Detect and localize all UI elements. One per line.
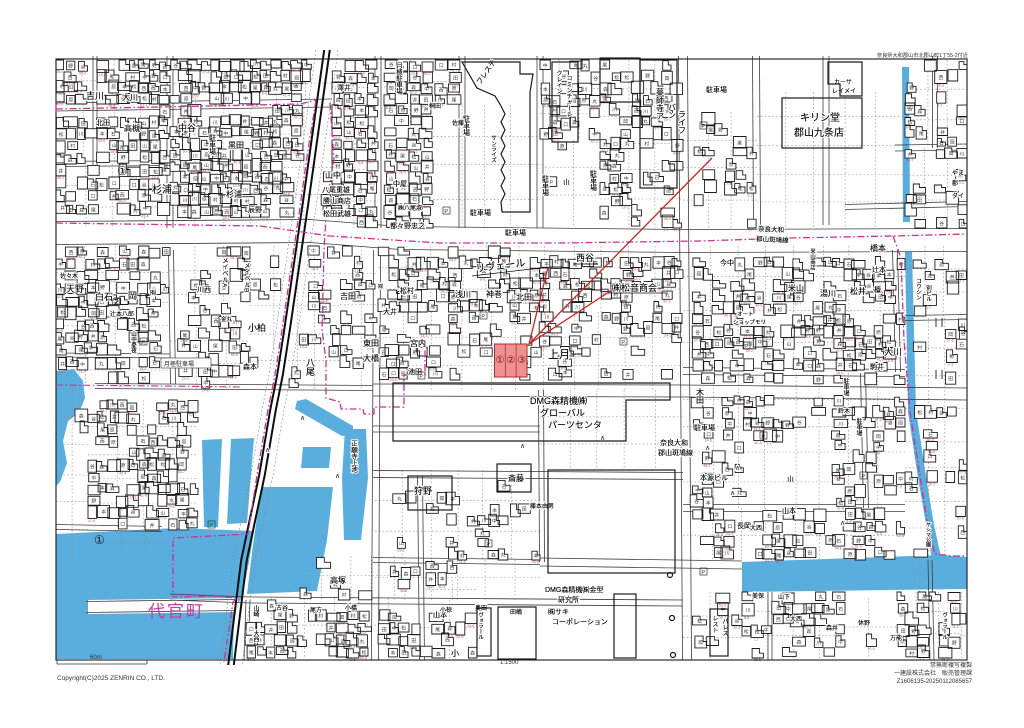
svg-text:30-6: 30-6 xyxy=(168,504,175,508)
svg-text:本: 本 xyxy=(222,84,227,91)
svg-text:㈲: ㈲ xyxy=(378,283,383,290)
svg-text:田: 田 xyxy=(808,551,813,557)
svg-text:村: 村 xyxy=(909,650,914,657)
svg-text:松: 松 xyxy=(624,74,629,81)
svg-text:西: 西 xyxy=(120,193,125,199)
svg-text:43-5: 43-5 xyxy=(121,256,128,260)
svg-text:西: 西 xyxy=(736,340,741,346)
svg-text:12-4: 12-4 xyxy=(805,533,812,537)
svg-text:22-6: 22-6 xyxy=(836,349,843,353)
svg-text:北田: 北田 xyxy=(516,293,532,302)
svg-text:八尾重雄: 八尾重雄 xyxy=(322,185,350,194)
svg-text:口: 口 xyxy=(857,329,862,335)
svg-text:川: 川 xyxy=(725,550,730,556)
svg-text:中: 中 xyxy=(898,476,903,483)
svg-text:西: 西 xyxy=(704,342,709,348)
svg-text:25-1: 25-1 xyxy=(450,70,457,74)
svg-text:松: 松 xyxy=(921,605,926,612)
svg-text:10-5: 10-5 xyxy=(928,482,935,486)
svg-text:小橋: 小橋 xyxy=(345,604,357,612)
svg-text:井: 井 xyxy=(666,270,671,277)
svg-text:松: 松 xyxy=(614,74,619,81)
svg-text:高塚: 高塚 xyxy=(330,575,346,585)
svg-text:中: 中 xyxy=(543,62,548,69)
svg-text:尾: 尾 xyxy=(253,86,258,92)
svg-text:村: 村 xyxy=(130,74,135,81)
svg-text:田: 田 xyxy=(624,304,629,310)
svg-text:中: 中 xyxy=(399,118,404,125)
svg-text:23-4: 23-4 xyxy=(344,107,351,111)
svg-text:一建設株式会社 販売管理課: 一建設株式会社 販売管理課 xyxy=(894,669,972,677)
svg-text:19-5: 19-5 xyxy=(744,302,751,306)
svg-text:谷: 谷 xyxy=(203,307,208,314)
svg-text:尾: 尾 xyxy=(787,295,792,301)
svg-text:口: 口 xyxy=(410,270,415,276)
svg-text:井: 井 xyxy=(329,625,334,632)
svg-text:村: 村 xyxy=(91,261,96,268)
svg-text:47-3: 47-3 xyxy=(591,140,598,144)
svg-text:井: 井 xyxy=(715,512,720,519)
svg-text:12-9: 12-9 xyxy=(355,269,362,273)
svg-text:口: 口 xyxy=(553,372,558,378)
svg-text:川西: 川西 xyxy=(197,286,211,294)
svg-text:28-2: 28-2 xyxy=(333,206,340,210)
svg-text:尾方: 尾方 xyxy=(310,606,322,614)
svg-text:26-9: 26-9 xyxy=(855,336,862,340)
svg-text:西: 西 xyxy=(162,155,167,161)
svg-text:石: 石 xyxy=(502,484,507,490)
svg-text:口: 口 xyxy=(91,194,96,200)
svg-text:松: 松 xyxy=(142,375,147,382)
svg-text:18-7: 18-7 xyxy=(541,346,548,350)
svg-text:谷: 谷 xyxy=(667,259,672,266)
svg-text:田: 田 xyxy=(776,606,781,612)
svg-text:本源ビル: 本源ビル xyxy=(700,473,728,482)
svg-text:岡: 岡 xyxy=(223,75,228,81)
svg-text:18-8: 18-8 xyxy=(542,104,549,108)
svg-text:キリン堂: キリン堂 xyxy=(800,112,840,124)
svg-text:1-7: 1-7 xyxy=(180,518,185,522)
svg-text:野: 野 xyxy=(614,315,619,322)
svg-text:川: 川 xyxy=(746,608,751,614)
svg-text:③: ③ xyxy=(517,355,526,366)
svg-text:松: 松 xyxy=(697,618,702,625)
svg-text:サンライズ: サンライズ xyxy=(490,135,497,163)
svg-text:50-8: 50-8 xyxy=(957,517,964,521)
svg-text:48-6: 48-6 xyxy=(928,450,935,454)
svg-text:西: 西 xyxy=(70,360,75,366)
svg-text:21-7: 21-7 xyxy=(653,126,660,130)
svg-text:本: 本 xyxy=(100,485,105,492)
svg-text:谷: 谷 xyxy=(81,63,86,70)
svg-text:7-6: 7-6 xyxy=(118,508,123,512)
svg-text:井: 井 xyxy=(60,205,65,212)
svg-text:野: 野 xyxy=(623,326,628,333)
svg-text:丸: 丸 xyxy=(501,551,506,558)
svg-text:谷: 谷 xyxy=(542,338,547,345)
svg-text:川: 川 xyxy=(172,416,177,422)
svg-text:丸: 丸 xyxy=(818,593,823,600)
svg-text:松: 松 xyxy=(142,95,147,102)
svg-text:森: 森 xyxy=(470,650,475,657)
svg-text:3-3: 3-3 xyxy=(391,299,396,303)
svg-text:谷: 谷 xyxy=(836,476,841,483)
svg-text:41-2: 41-2 xyxy=(110,189,117,193)
svg-text:原: 原 xyxy=(534,293,539,299)
svg-text:口: 口 xyxy=(368,283,373,289)
svg-text:34-6: 34-6 xyxy=(169,409,176,413)
svg-text:口: 口 xyxy=(120,522,125,528)
svg-text:大西: 大西 xyxy=(790,615,802,623)
svg-text:森: 森 xyxy=(411,84,416,91)
svg-text:21-7: 21-7 xyxy=(79,370,86,374)
svg-text:藤本由男: 藤本由男 xyxy=(530,502,554,510)
svg-text:口: 口 xyxy=(728,524,733,530)
svg-text:岡: 岡 xyxy=(222,250,227,256)
svg-text:15-7: 15-7 xyxy=(261,81,268,85)
svg-text:井: 井 xyxy=(428,576,433,583)
svg-text:森: 森 xyxy=(706,375,711,382)
svg-text:駒井: 駒井 xyxy=(870,362,884,371)
svg-text:中: 中 xyxy=(304,62,309,69)
svg-text:47-6: 47-6 xyxy=(88,519,95,523)
svg-text:ヤシマ公園: ヤシマ公園 xyxy=(925,522,931,548)
svg-text:井: 井 xyxy=(112,414,117,421)
svg-text:石: 石 xyxy=(654,175,659,181)
svg-text:村: 村 xyxy=(656,304,661,311)
svg-text:本: 本 xyxy=(91,285,96,292)
svg-text:原: 原 xyxy=(111,85,116,91)
svg-text:岡: 岡 xyxy=(121,361,126,367)
svg-text:岡: 岡 xyxy=(646,325,651,331)
svg-text:野: 野 xyxy=(645,72,650,79)
svg-text:川: 川 xyxy=(110,403,115,409)
svg-text:口: 口 xyxy=(674,317,679,323)
svg-text:駐車場: 駐車場 xyxy=(209,133,217,156)
svg-text:13-6: 13-6 xyxy=(704,370,711,374)
svg-text:中: 中 xyxy=(283,175,288,182)
svg-text:川: 川 xyxy=(183,198,188,204)
svg-text:谷: 谷 xyxy=(755,420,760,427)
svg-text:8-4: 8-4 xyxy=(846,520,851,524)
svg-text:村: 村 xyxy=(356,259,361,266)
svg-text:16-5: 16-5 xyxy=(399,162,406,166)
svg-text:尾: 尾 xyxy=(483,337,488,343)
svg-text:山: 山 xyxy=(828,259,833,266)
svg-text:本: 本 xyxy=(745,328,750,335)
svg-text:中: 中 xyxy=(837,306,842,313)
svg-text:36-3: 36-3 xyxy=(399,171,406,175)
svg-text:㈱サキ: ㈱サキ xyxy=(548,607,569,616)
svg-text:西: 西 xyxy=(151,440,156,446)
svg-text:原: 原 xyxy=(182,439,187,445)
svg-text:松: 松 xyxy=(359,120,364,127)
svg-text:尾: 尾 xyxy=(738,186,743,192)
svg-text:森: 森 xyxy=(604,313,609,320)
svg-text:村: 村 xyxy=(60,83,65,90)
svg-text:松: 松 xyxy=(727,374,732,381)
svg-text:38-7: 38-7 xyxy=(775,302,782,306)
svg-text:井: 井 xyxy=(626,372,631,379)
svg-text:原: 原 xyxy=(132,64,137,70)
svg-text:P: P xyxy=(481,314,485,320)
svg-text:12-9: 12-9 xyxy=(233,184,240,188)
svg-text:24-2: 24-2 xyxy=(664,334,671,338)
svg-text:原: 原 xyxy=(603,163,608,169)
svg-text:長岡: 長岡 xyxy=(737,522,751,530)
svg-text:西: 西 xyxy=(450,565,455,571)
svg-text:尾: 尾 xyxy=(435,627,440,633)
svg-text:丸: 丸 xyxy=(369,209,374,216)
svg-text:山: 山 xyxy=(623,131,628,138)
svg-text:1-7: 1-7 xyxy=(77,91,82,95)
svg-text:山: 山 xyxy=(204,208,209,215)
svg-text:松: 松 xyxy=(411,154,416,161)
svg-text:中: 中 xyxy=(735,363,740,370)
svg-text:森: 森 xyxy=(451,316,456,323)
svg-text:口: 口 xyxy=(183,188,188,194)
svg-text:原: 原 xyxy=(68,98,73,104)
svg-text:野: 野 xyxy=(952,640,957,647)
svg-text:5-8: 5-8 xyxy=(358,161,363,165)
svg-text:42-1: 42-1 xyxy=(765,545,772,549)
svg-text:原: 原 xyxy=(828,538,833,544)
svg-text:41-5: 41-5 xyxy=(877,358,884,362)
svg-text:駐車場: 駐車場 xyxy=(855,417,862,437)
svg-text:石: 石 xyxy=(388,143,393,149)
svg-text:本: 本 xyxy=(887,271,892,278)
svg-text:川: 川 xyxy=(575,305,580,311)
svg-text:森: 森 xyxy=(264,84,269,91)
svg-text:森: 森 xyxy=(603,86,608,93)
svg-text:原: 原 xyxy=(100,335,105,341)
svg-text:丸: 丸 xyxy=(285,209,290,216)
svg-text:60m: 60m xyxy=(90,655,102,661)
svg-text:7-9: 7-9 xyxy=(726,182,731,186)
svg-text:佐々木: 佐々木 xyxy=(60,272,78,280)
svg-text:田: 田 xyxy=(164,250,169,256)
svg-text:石: 石 xyxy=(848,363,853,369)
svg-text:村: 村 xyxy=(460,553,465,560)
svg-text:20-2: 20-2 xyxy=(338,622,345,626)
svg-text:松: 松 xyxy=(391,271,396,278)
svg-text:48-5: 48-5 xyxy=(755,304,762,308)
svg-text:森: 森 xyxy=(269,602,274,609)
svg-text:8-1: 8-1 xyxy=(856,498,861,502)
svg-text:44-6: 44-6 xyxy=(467,624,474,628)
svg-text:17-8: 17-8 xyxy=(67,257,74,261)
svg-text:本: 本 xyxy=(181,511,186,518)
svg-text:田: 田 xyxy=(848,512,853,518)
svg-text:松: 松 xyxy=(99,181,104,188)
svg-text:郡山九条店: 郡山九条店 xyxy=(794,126,844,139)
svg-text:2-8: 2-8 xyxy=(915,193,920,197)
svg-text:52-4: 52-4 xyxy=(633,268,640,272)
svg-text:田: 田 xyxy=(917,197,922,203)
svg-text:尾: 尾 xyxy=(153,144,158,150)
svg-text:村: 村 xyxy=(152,119,157,126)
svg-text:川: 川 xyxy=(953,606,958,612)
svg-text:村: 村 xyxy=(553,107,558,114)
svg-text:谷: 谷 xyxy=(867,283,872,290)
svg-text:川: 川 xyxy=(836,399,841,405)
svg-text:田: 田 xyxy=(959,273,964,279)
svg-text:56-9: 56-9 xyxy=(118,199,125,203)
svg-text:田: 田 xyxy=(301,338,306,344)
svg-text:石: 石 xyxy=(358,188,363,194)
svg-text:57-4: 57-4 xyxy=(57,153,64,157)
svg-text:松: 松 xyxy=(141,322,146,329)
svg-text:丸: 丸 xyxy=(625,141,630,148)
svg-text:本: 本 xyxy=(696,294,701,301)
svg-text:森: 森 xyxy=(100,249,105,256)
svg-text:西: 西 xyxy=(100,439,105,445)
svg-text:田: 田 xyxy=(142,169,147,175)
svg-text:尾: 尾 xyxy=(655,316,660,322)
svg-text:川: 川 xyxy=(192,197,197,203)
svg-text:村: 村 xyxy=(917,344,922,351)
svg-text:田: 田 xyxy=(522,507,527,513)
svg-text:谷: 谷 xyxy=(666,280,671,287)
svg-text:52-3: 52-3 xyxy=(663,300,670,304)
svg-text:谷: 谷 xyxy=(91,415,96,422)
svg-text:ショップモリ: ショップモリ xyxy=(733,319,766,326)
svg-text:田: 田 xyxy=(99,311,104,317)
svg-text:1-5: 1-5 xyxy=(301,82,306,86)
svg-text:西: 西 xyxy=(355,272,360,278)
svg-text:岡: 岡 xyxy=(665,76,670,82)
svg-text:原: 原 xyxy=(121,463,126,469)
svg-text:石: 石 xyxy=(836,538,841,544)
svg-text:松: 松 xyxy=(716,329,721,336)
svg-text:口: 口 xyxy=(413,65,418,71)
svg-text:谷: 谷 xyxy=(142,182,147,189)
svg-text:川: 川 xyxy=(634,98,639,104)
svg-text:40-3: 40-3 xyxy=(233,161,240,165)
svg-text:吉川: 吉川 xyxy=(86,91,104,101)
svg-text:41-5: 41-5 xyxy=(56,102,63,106)
svg-text:川: 川 xyxy=(312,337,317,343)
svg-text:井: 井 xyxy=(242,118,247,125)
svg-text:西: 西 xyxy=(725,467,730,473)
svg-text:8-1: 8-1 xyxy=(937,103,942,107)
svg-text:村: 村 xyxy=(152,96,157,103)
svg-text:谷: 谷 xyxy=(939,410,944,417)
svg-text:森: 森 xyxy=(141,261,146,268)
svg-text:石: 石 xyxy=(122,262,127,268)
svg-text:森: 森 xyxy=(68,157,73,164)
svg-text:井: 井 xyxy=(837,327,842,334)
svg-text:井: 井 xyxy=(767,307,772,314)
svg-text:松: 松 xyxy=(346,119,351,126)
svg-text:山: 山 xyxy=(142,143,147,150)
svg-text:中: 中 xyxy=(214,175,219,182)
svg-text:森井: 森井 xyxy=(826,624,838,632)
svg-text:小: 小 xyxy=(451,649,459,658)
svg-text:谷: 谷 xyxy=(757,295,762,302)
svg-text:43-6: 43-6 xyxy=(98,139,105,143)
svg-text:谷: 谷 xyxy=(81,323,86,330)
svg-text:36-6: 36-6 xyxy=(804,335,811,339)
svg-text:駐車場: 駐車場 xyxy=(590,169,598,192)
svg-text:野: 野 xyxy=(141,131,146,138)
svg-text:谷: 谷 xyxy=(939,220,944,227)
svg-text:大橋: 大橋 xyxy=(363,353,379,363)
svg-text:丸: 丸 xyxy=(295,107,300,114)
svg-text:山: 山 xyxy=(214,95,219,102)
svg-text:㈲: ㈲ xyxy=(150,289,156,297)
svg-text:森: 森 xyxy=(336,97,341,104)
svg-text:美保: 美保 xyxy=(752,592,764,600)
svg-text:山: 山 xyxy=(202,176,207,183)
svg-text:松: 松 xyxy=(575,281,580,288)
svg-text:DMG森精機㈱: DMG森精機㈱ xyxy=(530,395,587,406)
svg-text:森: 森 xyxy=(746,375,751,382)
svg-text:野: 野 xyxy=(414,107,419,114)
svg-text:原: 原 xyxy=(80,249,85,255)
svg-text:石: 石 xyxy=(69,207,74,213)
svg-text:丸: 丸 xyxy=(615,152,620,159)
svg-text:村: 村 xyxy=(342,592,347,599)
svg-text:31-9: 31-9 xyxy=(612,194,619,198)
svg-text:田: 田 xyxy=(901,629,906,635)
svg-text:30-3: 30-3 xyxy=(293,68,300,72)
svg-text:山: 山 xyxy=(787,340,792,347)
svg-text:野: 野 xyxy=(152,62,157,69)
svg-text:駐車場: 駐車場 xyxy=(470,208,491,217)
svg-text:神巻: 神巻 xyxy=(486,289,502,299)
svg-text:ılı: ılı xyxy=(563,177,570,187)
svg-text:本: 本 xyxy=(161,118,166,125)
svg-text:松: 松 xyxy=(887,339,892,346)
svg-text:川: 川 xyxy=(643,109,648,115)
svg-text:口: 口 xyxy=(715,342,720,348)
svg-text:松: 松 xyxy=(960,474,965,481)
svg-text:小椋: 小椋 xyxy=(440,606,452,614)
svg-text:∧: ∧ xyxy=(265,447,270,454)
svg-text:井: 井 xyxy=(749,150,754,157)
svg-text:田: 田 xyxy=(382,627,387,633)
svg-text:中: 中 xyxy=(548,179,553,186)
svg-text:野: 野 xyxy=(254,130,259,137)
svg-text:42-4: 42-4 xyxy=(119,472,126,476)
svg-text:井: 井 xyxy=(425,164,430,171)
svg-text:原: 原 xyxy=(452,86,457,92)
svg-text:湯川: 湯川 xyxy=(820,288,836,298)
svg-text:22-4: 22-4 xyxy=(158,411,165,415)
svg-text:原: 原 xyxy=(624,295,629,301)
svg-text:本: 本 xyxy=(563,369,568,376)
svg-text:田: 田 xyxy=(346,98,351,104)
svg-text:口: 口 xyxy=(674,270,679,276)
svg-text:森: 森 xyxy=(746,399,751,406)
svg-text:西: 西 xyxy=(264,154,269,160)
svg-text:47-6: 47-6 xyxy=(673,332,680,336)
svg-text:ヴォラール: ヴォラール xyxy=(941,611,948,640)
svg-text:井: 井 xyxy=(91,333,96,340)
svg-text:P: P xyxy=(209,523,213,529)
svg-text:大井: 大井 xyxy=(383,307,397,316)
svg-text:松: 松 xyxy=(362,649,367,656)
svg-text:都々野忠之: 都々野忠之 xyxy=(390,221,425,230)
svg-text:岡: 岡 xyxy=(440,496,445,502)
svg-text:谷: 谷 xyxy=(726,327,731,334)
svg-text:本: 本 xyxy=(543,86,548,93)
svg-text:松: 松 xyxy=(273,128,278,135)
svg-text:岡: 岡 xyxy=(128,291,137,301)
svg-text:川: 川 xyxy=(273,176,278,182)
svg-text:本: 本 xyxy=(796,361,801,368)
